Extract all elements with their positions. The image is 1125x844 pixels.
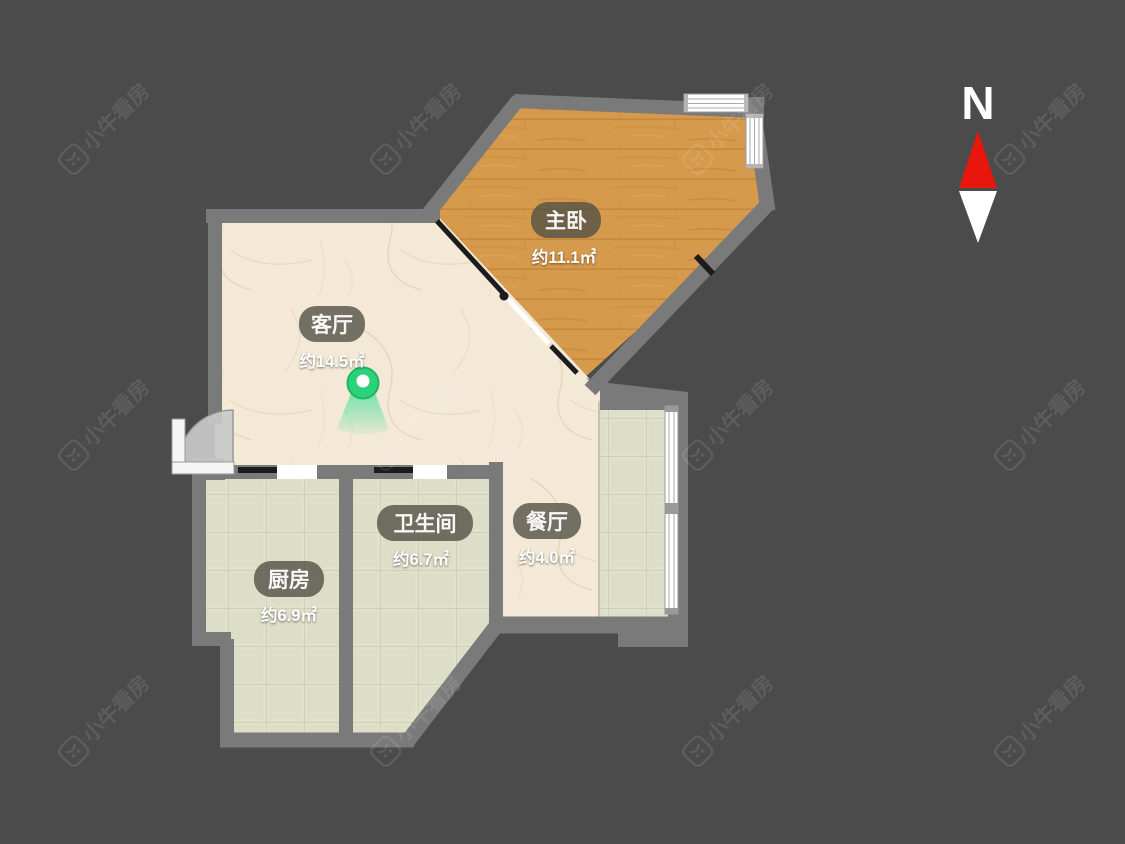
bathroom-door-opening bbox=[413, 465, 447, 479]
room-area: 约4.0㎡ bbox=[519, 547, 575, 567]
watermark-item: 小牛看房 bbox=[57, 79, 155, 177]
watermark-text: 小牛看房 bbox=[390, 79, 466, 155]
floor-balcony-strip bbox=[598, 400, 668, 620]
watermark-item: 小牛看房 bbox=[57, 375, 155, 473]
bull-logo-icon bbox=[57, 142, 91, 176]
panorama-pin-dot bbox=[357, 375, 370, 388]
kitchen-door-opening bbox=[277, 465, 317, 479]
watermark-text: 小牛看房 bbox=[702, 375, 778, 451]
watermark-item: 小牛看房 bbox=[57, 671, 155, 769]
room-name: 餐厅 bbox=[526, 510, 568, 534]
room-area: 约6.9㎡ bbox=[261, 605, 317, 625]
wall-step-bottom-right bbox=[618, 625, 688, 647]
compass-needle-north-icon bbox=[959, 131, 997, 188]
watermark-item: 小牛看房 bbox=[681, 375, 779, 473]
watermark-text: 小牛看房 bbox=[78, 79, 154, 155]
entrance-door bbox=[172, 410, 234, 474]
bull-logo-icon bbox=[993, 734, 1027, 768]
watermark-text: 小牛看房 bbox=[78, 375, 154, 451]
room-name: 主卧 bbox=[545, 210, 587, 233]
watermark-text: 小牛看房 bbox=[1014, 671, 1090, 747]
label-master-bedroom: 主卧 约11.1㎡ bbox=[531, 202, 601, 267]
bull-logo-icon bbox=[681, 734, 715, 768]
bull-logo-icon bbox=[369, 142, 403, 176]
watermark-text: 小牛看房 bbox=[1014, 79, 1090, 155]
bull-logo-icon bbox=[57, 438, 91, 472]
watermark-text: 小牛看房 bbox=[702, 671, 778, 747]
room-name: 厨房 bbox=[268, 568, 310, 592]
wall-junction-balcony-top bbox=[586, 378, 688, 410]
bull-logo-icon bbox=[993, 142, 1027, 176]
balcony-window bbox=[665, 406, 678, 614]
compass-north-label: N bbox=[961, 77, 994, 129]
watermark-item: 小牛看房 bbox=[369, 79, 467, 177]
bull-logo-icon bbox=[57, 734, 91, 768]
watermark-item: 小牛看房 bbox=[993, 375, 1091, 473]
watermark-text: 小牛看房 bbox=[78, 671, 154, 747]
room-area: 约6.7㎡ bbox=[393, 549, 449, 569]
label-kitchen: 厨房 约6.9㎡ bbox=[254, 561, 324, 625]
bull-logo-icon bbox=[993, 438, 1027, 472]
floor-plan-svg: 主卧 约11.1㎡ 客厅 约14.5㎡ 卫生间 约6.7㎡ 餐厅 约4.0㎡ 厨… bbox=[0, 0, 1125, 844]
compass-needle-south-icon bbox=[959, 191, 997, 243]
label-dining-room: 餐厅 约4.0㎡ bbox=[513, 503, 581, 567]
entrance-door-leaf bbox=[172, 462, 234, 474]
room-name: 卫生间 bbox=[394, 512, 457, 536]
label-living-room: 客厅 约14.5㎡ bbox=[299, 306, 365, 371]
watermark-item: 小牛看房 bbox=[993, 79, 1091, 177]
entrance-door-arc bbox=[178, 410, 233, 465]
watermark-item: 小牛看房 bbox=[681, 671, 779, 769]
compass: N bbox=[959, 77, 997, 243]
floor-plan-viewer: 主卧 约11.1㎡ 客厅 约14.5㎡ 卫生间 约6.7㎡ 餐厅 约4.0㎡ 厨… bbox=[0, 0, 1125, 844]
entrance-door-leaf-open bbox=[172, 419, 185, 466]
room-area: 约11.1㎡ bbox=[532, 247, 597, 267]
room-area: 约14.5㎡ bbox=[299, 351, 365, 371]
watermark-text: 小牛看房 bbox=[1014, 375, 1090, 451]
room-name: 客厅 bbox=[311, 313, 353, 337]
watermark-item: 小牛看房 bbox=[993, 671, 1091, 769]
